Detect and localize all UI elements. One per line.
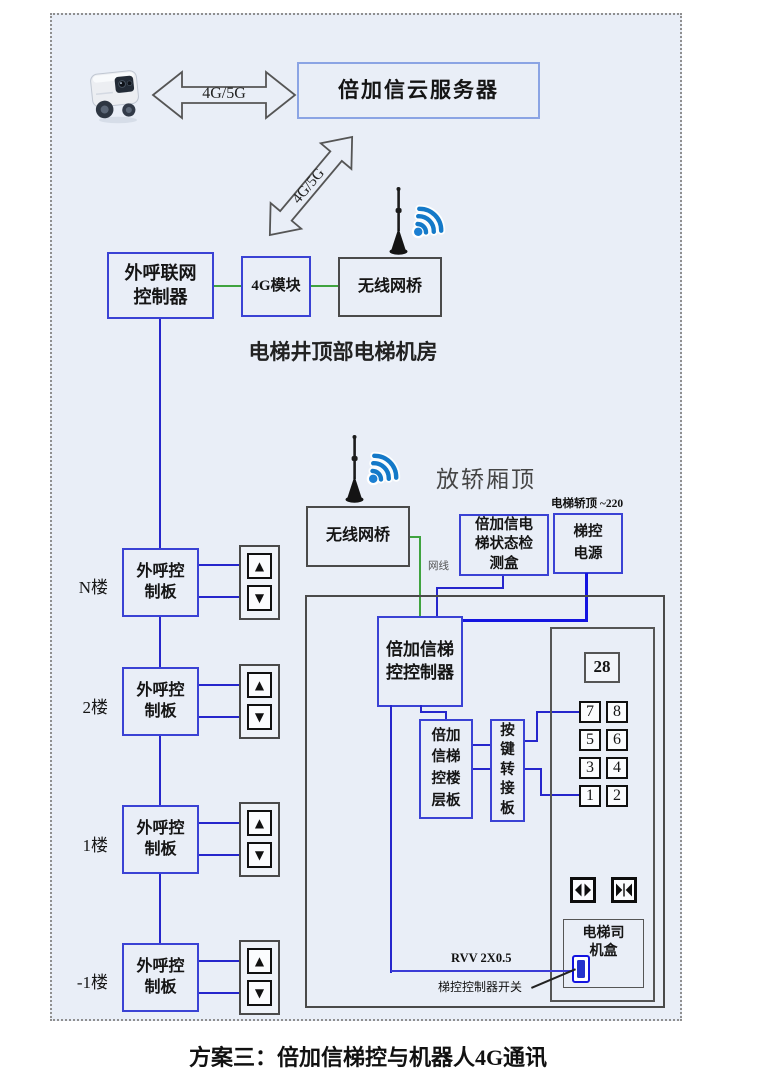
- machine-room-caption: 电梯井顶部电梯机房: [225, 336, 461, 366]
- diagram-page: 4G/5G 倍加信云服务器 4G/5G: [0, 0, 768, 1090]
- elevator-control-power-box: 梯控电源: [553, 513, 623, 574]
- connector-blue: [199, 992, 239, 994]
- connector-blue: [436, 587, 504, 589]
- cab-button-6: 6: [606, 729, 628, 751]
- connector-green: [214, 285, 241, 287]
- door-close-icon: [614, 880, 634, 900]
- call-down-button: ▼: [247, 585, 272, 611]
- door-open-icon: [573, 880, 593, 900]
- connector-blue: [199, 564, 239, 566]
- cab-button-7: 7: [579, 701, 601, 723]
- call-up-button: ▲: [247, 672, 272, 698]
- call-down-button: ▼: [247, 842, 272, 868]
- connector-blue: [199, 716, 239, 718]
- delivery-robot-icon: [86, 60, 150, 126]
- connector-blue: [473, 768, 490, 770]
- connector-green: [311, 285, 338, 287]
- connector-blue: [199, 822, 239, 824]
- wireless-bridge-box-machine-room: 无线网桥: [338, 257, 442, 317]
- down-arrow-icon: ▼: [255, 591, 264, 605]
- hall-call-panel-n: ▲ ▼: [239, 545, 280, 620]
- rvv-cable-label: RVV 2X0.5: [451, 951, 541, 966]
- outcall-board-box-2: 外呼控制板: [122, 667, 199, 736]
- up-arrow-icon: ▲: [255, 954, 264, 968]
- outcall-board-box-minus1: 外呼控制板: [122, 943, 199, 1012]
- connector-blue: [199, 960, 239, 962]
- connector-blue: [199, 596, 239, 598]
- floor-board-box: 倍加信梯控楼层板: [419, 719, 473, 819]
- network-cable-label: 网线: [428, 558, 454, 573]
- rvv-cable-line: [391, 970, 573, 972]
- link-label-4g5g: 4G/5G: [187, 85, 261, 103]
- up-arrow-icon: ▲: [255, 678, 264, 692]
- wireless-bridge-box-car-top: 无线网桥: [306, 506, 410, 567]
- connector-blue: [473, 744, 490, 746]
- outcall-board-box-1: 外呼控制板: [122, 805, 199, 874]
- cab-button-2: 2: [606, 785, 628, 807]
- wifi-signal-icon: [358, 451, 401, 494]
- scheme-caption: 方案三：倍加信梯控与机器人4G通讯: [50, 1040, 686, 1072]
- antenna-icon: [346, 435, 364, 503]
- down-arrow-icon: ▼: [255, 848, 264, 862]
- hall-call-panel-minus1: ▲ ▼: [239, 940, 280, 1015]
- cab-button-1: 1: [579, 785, 601, 807]
- switch-pointer-label: 梯控控制器开关: [438, 978, 534, 995]
- connector-blue: [390, 705, 392, 973]
- connector-blue: [540, 768, 542, 796]
- floor-label-2: 2楼: [56, 693, 108, 718]
- up-arrow-icon: ▲: [255, 559, 264, 573]
- call-up-button: ▲: [247, 553, 272, 579]
- call-up-button: ▲: [247, 810, 272, 836]
- outcall-board-box-n: 外呼控制板: [122, 548, 199, 617]
- floor-label-minus1: -1楼: [52, 968, 108, 993]
- 4g-module-box: 4G模块: [241, 256, 311, 317]
- cab-button-4: 4: [606, 757, 628, 779]
- floor-label-1: 1楼: [56, 831, 108, 856]
- elevator-status-detect-box: 倍加信电梯状态检测盒: [459, 514, 549, 576]
- call-down-button: ▼: [247, 980, 272, 1006]
- up-arrow-icon: ▲: [255, 816, 264, 830]
- call-down-button: ▼: [247, 704, 272, 730]
- floor-display: 28: [584, 652, 620, 683]
- cab-button-8: 8: [606, 701, 628, 723]
- antenna-wifi-icon-machine-room: [385, 184, 447, 260]
- down-arrow-icon: ▼: [255, 710, 264, 724]
- cloud-server-box: 倍加信云服务器: [297, 62, 540, 119]
- connector-blue: [536, 711, 538, 742]
- key-adapter-board-box: 按键转接板: [490, 719, 525, 822]
- call-up-button: ▲: [247, 948, 272, 974]
- elevator-controller-box: 倍加信梯控控制器: [377, 616, 463, 707]
- connector-blue: [199, 684, 239, 686]
- antenna-wifi-icon-car-top: [341, 432, 403, 508]
- down-arrow-icon: ▼: [255, 986, 264, 1000]
- outcall-network-controller-box: 外呼联网控制器: [107, 252, 214, 319]
- wifi-signal-icon: [403, 204, 446, 247]
- connector-blue: [199, 854, 239, 856]
- car-top-caption: 放轿厢顶: [436, 460, 544, 494]
- car-top-power-note: 电梯轿顶 ~220: [551, 495, 635, 511]
- door-open-button: [570, 877, 596, 903]
- connector-blue: [420, 711, 447, 713]
- cab-button-5: 5: [579, 729, 601, 751]
- antenna-icon: [390, 187, 408, 255]
- floor-label-n: N楼: [56, 573, 108, 598]
- hall-call-panel-2: ▲ ▼: [239, 664, 280, 739]
- cab-button-3: 3: [579, 757, 601, 779]
- door-close-button: [611, 877, 637, 903]
- hall-call-panel-1: ▲ ▼: [239, 802, 280, 877]
